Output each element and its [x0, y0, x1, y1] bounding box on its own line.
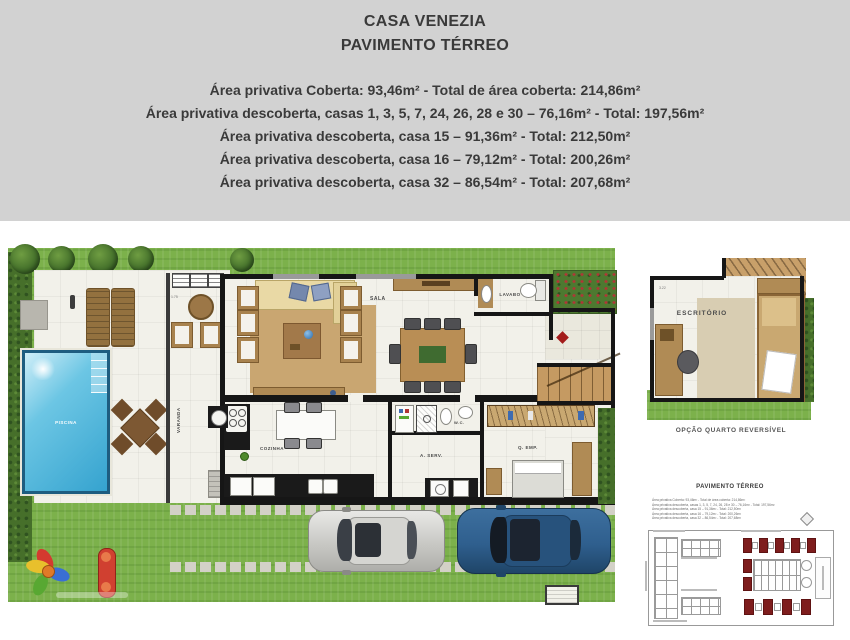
window — [190, 273, 208, 288]
dining-chair — [404, 318, 421, 330]
dining-chair — [444, 381, 461, 393]
street-label — [653, 620, 687, 622]
office-inset: 3.22 ESCRITÓRIO — [645, 258, 817, 424]
watermark — [56, 592, 128, 598]
varanda-glass-wall — [166, 273, 170, 503]
doc-subtitle: PAVIMENTO TÉRREO — [0, 31, 850, 55]
wall — [537, 363, 615, 367]
armchair — [237, 337, 259, 363]
clothes — [508, 411, 513, 420]
pool: PISCINA — [22, 350, 110, 494]
unit-highlighted — [791, 538, 800, 553]
dining-chair — [465, 344, 477, 364]
varanda-chair — [200, 322, 222, 348]
wall — [800, 276, 804, 402]
window — [650, 308, 654, 340]
wall — [220, 274, 225, 505]
wall — [474, 274, 478, 296]
wall — [722, 258, 726, 278]
pantry-item — [399, 409, 403, 413]
header-band: CASA VENEZIA PAVIMENTO TÉRREO Área priva… — [0, 0, 850, 221]
amenity-label — [822, 566, 824, 590]
dining-table — [400, 328, 465, 382]
wall — [474, 312, 553, 316]
armchair — [340, 337, 362, 363]
unit — [755, 603, 762, 611]
unit — [774, 603, 781, 611]
unit-block-mid-bottom — [681, 597, 721, 615]
area-line: Área privativa descoberta, casa 16 – 79,… — [0, 148, 850, 171]
doc-title: CASA VENEZIA — [0, 0, 850, 31]
armchair — [340, 310, 362, 336]
site-plan-title: PAVIMENTO TÉRREO — [660, 484, 800, 490]
washer — [430, 480, 449, 497]
unit-block-left — [654, 537, 678, 619]
site-plan-notes: Área privativa Coberta: 93,46m² - Total … — [652, 498, 812, 521]
inset-hedge — [804, 298, 814, 402]
console-table — [393, 278, 479, 291]
site-plan: PAVIMENTO TÉRREO Área privativa Coberta:… — [640, 470, 845, 632]
street-label — [681, 557, 717, 559]
room-label-aserv: A. SERV. — [420, 453, 443, 458]
unit — [800, 542, 806, 549]
office-chair — [677, 350, 699, 374]
wall — [650, 276, 724, 280]
entry-porch — [545, 312, 615, 359]
street-label — [653, 530, 685, 532]
toilet — [458, 406, 473, 419]
kitchen-table — [276, 410, 336, 440]
car-windshield — [337, 519, 352, 561]
tree — [48, 246, 75, 273]
wall — [484, 395, 537, 402]
lounger — [111, 288, 135, 347]
area-line: Área privativa descoberta, casa 32 – 86,… — [0, 171, 850, 194]
laundry-counter — [425, 478, 478, 497]
unit — [784, 542, 790, 549]
dresser — [486, 468, 502, 495]
dining-chair — [424, 381, 441, 393]
dimension-label: 1.75 — [171, 295, 178, 299]
unit-highlighted — [744, 599, 754, 615]
varanda-chair — [171, 322, 193, 348]
pinwheel-center — [42, 565, 55, 578]
car-rear-window — [407, 521, 417, 559]
table-runner — [419, 346, 446, 363]
wall — [650, 398, 804, 402]
car-mirror — [342, 507, 351, 512]
playground-pinwheel — [26, 548, 70, 596]
rocker-seat — [101, 582, 111, 592]
dining-chair — [404, 381, 421, 393]
lounger — [86, 288, 110, 347]
unit-highlighted — [743, 559, 752, 573]
pool-steps — [91, 353, 107, 393]
car-windshield — [490, 517, 507, 563]
unit-highlighted — [801, 599, 811, 615]
pillow — [311, 283, 332, 302]
car-mirror — [496, 572, 506, 577]
armchair — [237, 310, 259, 336]
laundry-tank — [453, 480, 469, 497]
window — [356, 274, 416, 279]
street-label — [645, 561, 647, 591]
area-line: Área privativa Coberta: 93,46m² - Total … — [0, 79, 850, 102]
unit-highlighted — [807, 538, 816, 553]
unit-highlighted — [743, 538, 752, 553]
wall — [553, 308, 615, 312]
car-sunroof — [510, 519, 540, 561]
door-gap — [460, 395, 475, 402]
site-amenity-strip — [815, 557, 831, 599]
unit-highlighted — [775, 538, 784, 553]
bed — [512, 460, 564, 498]
site-plot — [648, 530, 834, 626]
unit — [768, 542, 774, 549]
window — [172, 273, 190, 288]
shower — [416, 405, 437, 433]
brochure-page: CASA VENEZIA PAVIMENTO TÉRREO Área priva… — [0, 0, 850, 640]
drain — [423, 415, 431, 423]
bed-pillow — [515, 463, 561, 474]
area-line: Área privativa descoberta, casa 15 – 91,… — [0, 125, 850, 148]
kitchen-chair — [284, 438, 300, 449]
car-rear-window — [570, 520, 581, 560]
closet — [487, 405, 595, 427]
unit — [793, 603, 800, 611]
armchair — [340, 286, 362, 310]
door-gap — [348, 395, 363, 402]
dining-chair — [389, 344, 401, 364]
daybed-cushion — [762, 298, 796, 326]
pantry-item — [405, 409, 409, 413]
rocker-seat — [101, 552, 111, 562]
room-label-cozinha: COZINHA — [260, 446, 284, 451]
decor-tray — [290, 344, 300, 350]
burner — [238, 409, 246, 417]
room-label-lavabo: LAVABO — [474, 292, 546, 297]
console-decor — [422, 281, 450, 286]
site-feature-circle — [801, 577, 812, 588]
pantry-cabinet — [395, 405, 414, 433]
unit-highlighted — [763, 599, 773, 615]
wall — [388, 402, 392, 497]
appliance — [230, 477, 252, 496]
washer-door — [435, 484, 446, 495]
room-label-escritorio: ESCRITÓRIO — [659, 310, 745, 317]
varanda-table — [188, 294, 214, 320]
site-note: Área privativa descoberta, casa 32 – 86,… — [652, 516, 812, 521]
doormat — [545, 585, 579, 605]
car-silver — [308, 510, 445, 572]
dining-chair — [444, 318, 461, 330]
room-label-varanda: VARANDA — [176, 407, 181, 433]
plant — [240, 452, 249, 461]
pool-sparkle — [30, 358, 56, 380]
street-label — [681, 589, 717, 591]
car-mirror — [496, 505, 506, 510]
appliance — [253, 477, 275, 496]
unit-highlighted — [782, 599, 792, 615]
daybed-blanket — [761, 350, 796, 394]
wardrobe — [572, 442, 592, 496]
sink — [440, 408, 452, 425]
room-label-piscina: PISCINA — [22, 420, 110, 425]
round-sink — [211, 410, 227, 426]
pillow — [289, 282, 310, 301]
kitchen-sink-column — [208, 406, 228, 428]
inset-caption: OPÇÃO QUARTO REVERSÍVEL — [640, 427, 822, 434]
sink — [308, 479, 323, 494]
tree — [128, 246, 154, 272]
car-blue — [457, 508, 611, 574]
tree — [230, 248, 254, 272]
stove — [226, 406, 247, 432]
window — [273, 274, 319, 279]
room-label-qemp: Q. EMP. — [518, 445, 538, 450]
burner — [229, 419, 237, 427]
burner — [229, 409, 237, 417]
daybed — [757, 294, 805, 402]
room-label-wc: W.C. — [454, 420, 465, 425]
decor-ball — [304, 330, 313, 339]
unit-highlighted — [743, 577, 752, 591]
car-sunroof — [355, 523, 381, 557]
unit — [752, 542, 758, 549]
hedge-right — [598, 408, 615, 504]
wall — [549, 274, 553, 340]
sink — [323, 479, 338, 494]
clothes — [528, 411, 533, 420]
staircase — [537, 367, 611, 405]
armchair — [237, 286, 259, 310]
dining-chair — [424, 318, 441, 330]
main-floor-plan: PISCINA 1.75 VARANDA — [8, 248, 615, 602]
clothes — [578, 411, 584, 420]
kitchen-chair — [306, 438, 322, 449]
burner — [238, 419, 246, 427]
coffee-table — [283, 323, 321, 359]
pantry-item — [399, 416, 409, 419]
unit-highlighted — [759, 538, 768, 553]
kitchen-counter-bottom — [224, 474, 374, 497]
area-line: Área privativa descoberta, casas 1, 3, 5… — [0, 102, 850, 125]
area-summary: Área privativa Coberta: 93,46m² - Total … — [0, 55, 850, 194]
kitchen-chair — [284, 402, 300, 413]
dimension-label: 3.22 — [659, 286, 666, 290]
desk-item — [660, 329, 674, 341]
car-mirror — [342, 570, 351, 575]
wall — [220, 497, 615, 505]
playground-rocker — [96, 548, 116, 596]
wall — [480, 402, 484, 497]
street-label — [741, 530, 781, 532]
unit-block-mid-top — [681, 539, 721, 557]
deck-mat — [20, 300, 48, 330]
site-feature-circle — [801, 560, 812, 571]
kitchen-chair — [306, 402, 322, 413]
unit-block-right — [753, 559, 801, 591]
parasol-pole — [70, 295, 75, 309]
shelf — [757, 278, 803, 294]
room-label-sala: SALA — [370, 296, 386, 302]
